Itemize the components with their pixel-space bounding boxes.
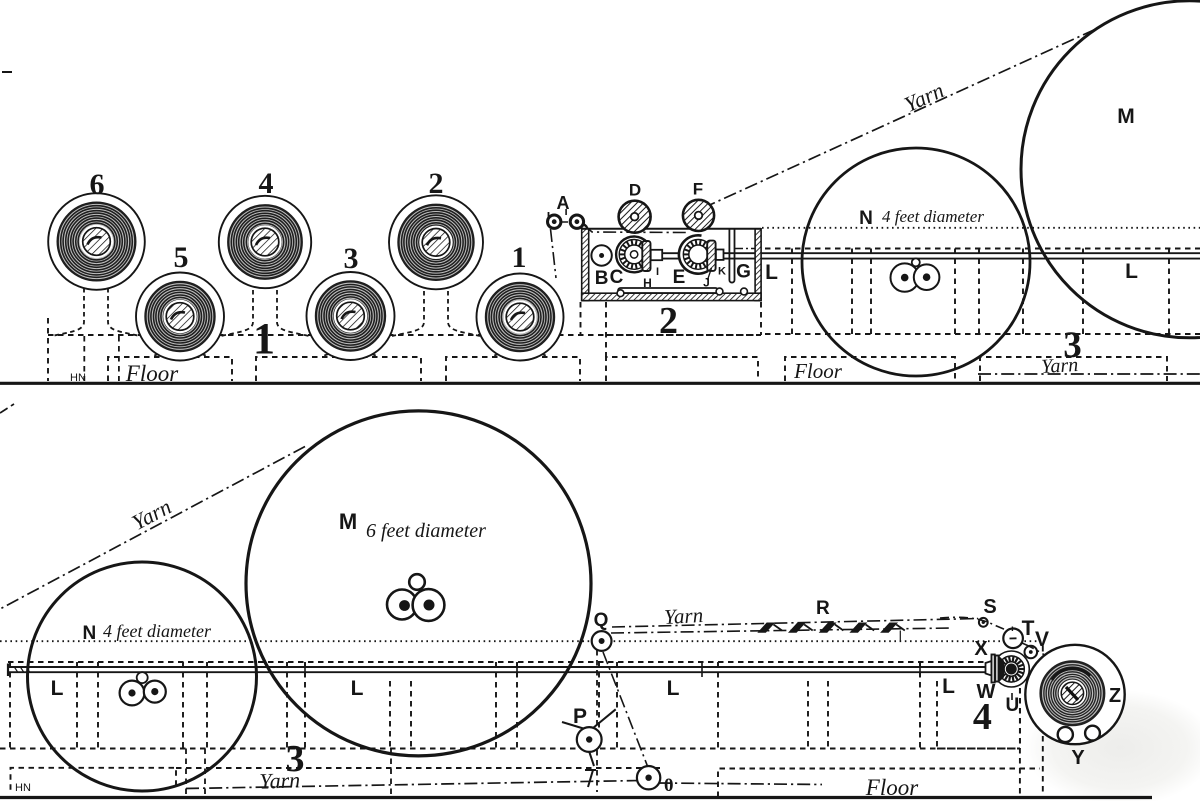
svg-text:4: 4	[973, 696, 992, 738]
svg-text:S: S	[983, 596, 996, 618]
svg-text:3: 3	[344, 242, 359, 275]
svg-text:M: M	[1117, 105, 1135, 128]
svg-text:1: 1	[253, 314, 275, 363]
svg-text:1: 1	[512, 241, 527, 274]
svg-text:HN: HN	[15, 782, 31, 794]
svg-text:0: 0	[664, 775, 674, 796]
svg-text:L: L	[351, 677, 364, 700]
svg-text:K: K	[718, 266, 726, 278]
svg-text:L: L	[765, 261, 778, 284]
svg-text:5: 5	[174, 241, 189, 274]
svg-text:Z: Z	[1109, 685, 1121, 707]
svg-text:2: 2	[429, 167, 444, 200]
svg-text:I: I	[656, 266, 659, 278]
svg-text:Q: Q	[594, 610, 609, 631]
svg-text:F: F	[693, 180, 703, 199]
svg-text:H: H	[643, 276, 652, 290]
svg-text:P: P	[573, 705, 587, 728]
svg-text:M: M	[339, 509, 357, 534]
svg-text:X: X	[974, 638, 988, 660]
svg-text:A: A	[557, 193, 570, 213]
svg-text:L: L	[1125, 260, 1138, 283]
svg-text:4: 4	[259, 167, 274, 200]
svg-text:4 feet diameter: 4 feet diameter	[103, 621, 212, 641]
svg-text:2: 2	[659, 300, 678, 342]
svg-text:Yarn: Yarn	[664, 603, 704, 629]
svg-text:L: L	[667, 677, 680, 700]
svg-text:R: R	[816, 598, 830, 619]
svg-text:Floor: Floor	[125, 361, 179, 386]
svg-text:L: L	[51, 677, 64, 700]
svg-text:3: 3	[286, 738, 305, 780]
svg-text:V: V	[1035, 628, 1049, 651]
svg-text:L: L	[942, 675, 955, 698]
svg-text:D: D	[629, 181, 641, 200]
svg-text:N: N	[859, 208, 873, 229]
svg-text:Floor: Floor	[793, 359, 843, 383]
svg-text:T: T	[1022, 617, 1035, 640]
svg-text:3: 3	[1063, 325, 1082, 366]
svg-text:B: B	[595, 268, 609, 289]
svg-text:E: E	[673, 267, 686, 288]
svg-text:Y: Y	[1071, 747, 1085, 769]
svg-text:HN: HN	[70, 372, 86, 384]
svg-text:4 feet diameter: 4 feet diameter	[882, 207, 984, 226]
svg-text:6: 6	[90, 168, 105, 201]
svg-text:N: N	[83, 623, 97, 644]
svg-text:6 feet diameter: 6 feet diameter	[366, 520, 486, 542]
svg-text:G: G	[736, 262, 751, 283]
svg-text:C: C	[610, 267, 624, 288]
